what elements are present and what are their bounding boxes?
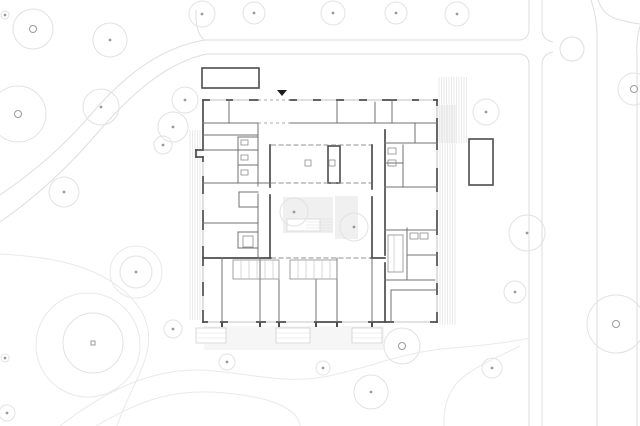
floor-plan-page (0, 0, 640, 426)
entrance-marker-layer (277, 90, 287, 96)
architectural-site-plan (0, 0, 640, 426)
contours-layer (0, 246, 529, 426)
steps-layer (196, 328, 382, 343)
courtyard-fill-layer (283, 196, 358, 239)
